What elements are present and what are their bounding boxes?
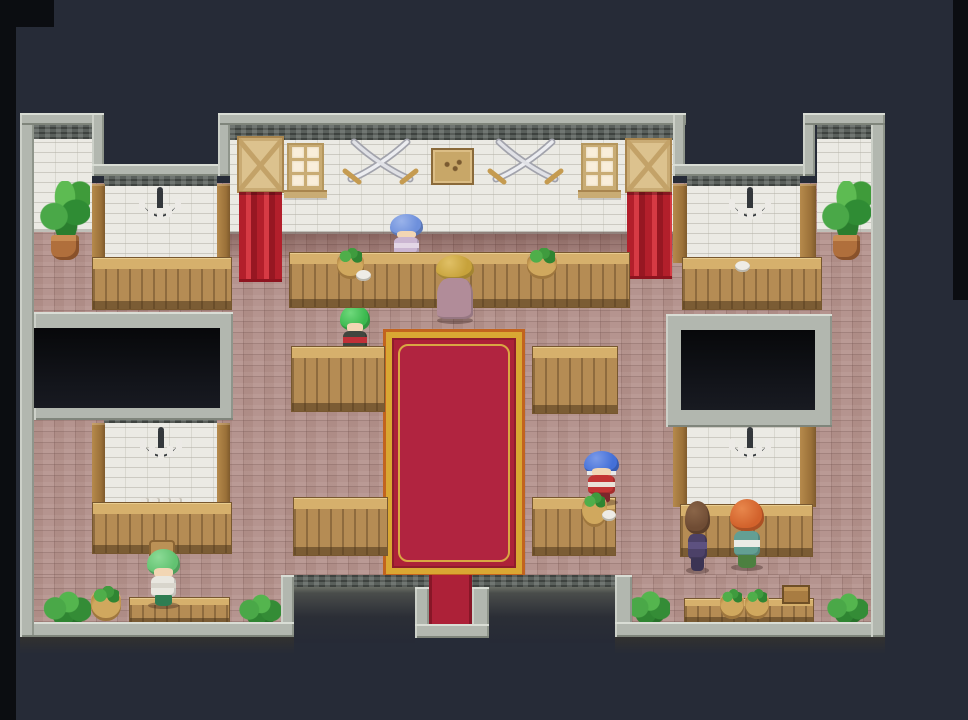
chandelier-upper-right-icon [726, 186, 774, 236]
wall-fade-bottom-right [615, 637, 885, 654]
border-exit-bottom [415, 624, 489, 638]
window-left [287, 143, 324, 198]
border-exit-left-wall [415, 587, 429, 627]
door-panel-left[interactable] [237, 136, 284, 193]
npc-villager-purple[interactable] [684, 501, 711, 572]
border-exit-right-wall [472, 587, 489, 627]
border-notch2-bottom [673, 164, 815, 176]
counter-upper-left [92, 257, 232, 310]
cap-top-main [230, 124, 673, 140]
letterbox-right [953, 0, 968, 300]
crossed-swords-left-icon [341, 137, 420, 186]
table-mid-left-lower [293, 497, 388, 556]
pillar-ul-1 [92, 184, 105, 263]
wall-fade-bottom-left [20, 637, 294, 654]
map-tavern-interior [0, 0, 968, 720]
letterbox-left [0, 0, 16, 720]
border-notch1-bottom [92, 164, 230, 176]
carpet-exit-south[interactable] [429, 575, 472, 624]
chandelier-lower-left-icon [137, 426, 185, 476]
pillar-lr-2 [800, 423, 816, 507]
npc-kid-green-bandana[interactable] [146, 549, 181, 607]
npc-villager-orange-hair[interactable] [729, 499, 765, 569]
veggie-basket-counter-2 [527, 252, 557, 279]
plant-bottom-right-2 [825, 590, 868, 623]
border-bottom-right [615, 622, 885, 637]
bottom-inset-right [489, 587, 615, 643]
border-top-tower-right [803, 113, 885, 125]
plant-bottom-left-2 [237, 591, 281, 625]
chandelier-upper-left-icon [136, 186, 184, 236]
door-panel-right[interactable] [625, 138, 672, 193]
potted-plant-top-right [822, 181, 871, 260]
pillar-ur-1 [673, 184, 687, 263]
border-left-wall [20, 113, 34, 637]
pillar-ur-2 [800, 184, 816, 263]
dish-counter-2 [735, 261, 750, 272]
pillar-lr-1 [673, 423, 687, 507]
plant-bottom-right-1 [626, 587, 670, 624]
crossed-swords-right-icon [486, 137, 565, 186]
red-carpet [383, 329, 525, 577]
cap-tower-left [34, 124, 92, 139]
wooden-crate [782, 585, 810, 604]
curtain-left [239, 192, 282, 282]
basket-bottom-left [91, 590, 121, 621]
letterbox-top-left [0, 0, 54, 27]
cap-alcove-upper-right [687, 176, 800, 186]
npc-customer-blonde-robe[interactable] [435, 255, 475, 322]
pillar-ul-2 [217, 184, 230, 263]
dark-opening-right [681, 330, 815, 410]
cap-alcove-upper-left [104, 176, 217, 186]
cap-tower-right [817, 124, 871, 139]
table-mid-left-upper [291, 346, 385, 412]
potted-plant-top-left [40, 181, 90, 260]
counter-upper-right [682, 257, 822, 310]
pillar-ll-1 [92, 423, 105, 507]
curtain-right [627, 192, 672, 279]
veggie-basket-bench-1 [720, 593, 744, 619]
window-right [581, 143, 618, 198]
plant-bottom-left-1 [41, 588, 91, 625]
chandelier-lower-right-icon [726, 426, 774, 476]
dish-counter-1 [356, 270, 371, 281]
table-mid-right-upper [532, 346, 618, 414]
dark-opening-left [34, 328, 220, 408]
border-right-wall [871, 113, 885, 637]
wall-plaque [431, 148, 474, 185]
game-screen [0, 0, 968, 720]
pillar-ll-2 [217, 423, 230, 507]
bottom-inset-left [294, 587, 415, 643]
dish-warrior [602, 510, 616, 521]
veggie-basket-bench-2 [745, 593, 769, 619]
border-bottom-left [20, 622, 294, 637]
border-top-main [218, 113, 686, 125]
